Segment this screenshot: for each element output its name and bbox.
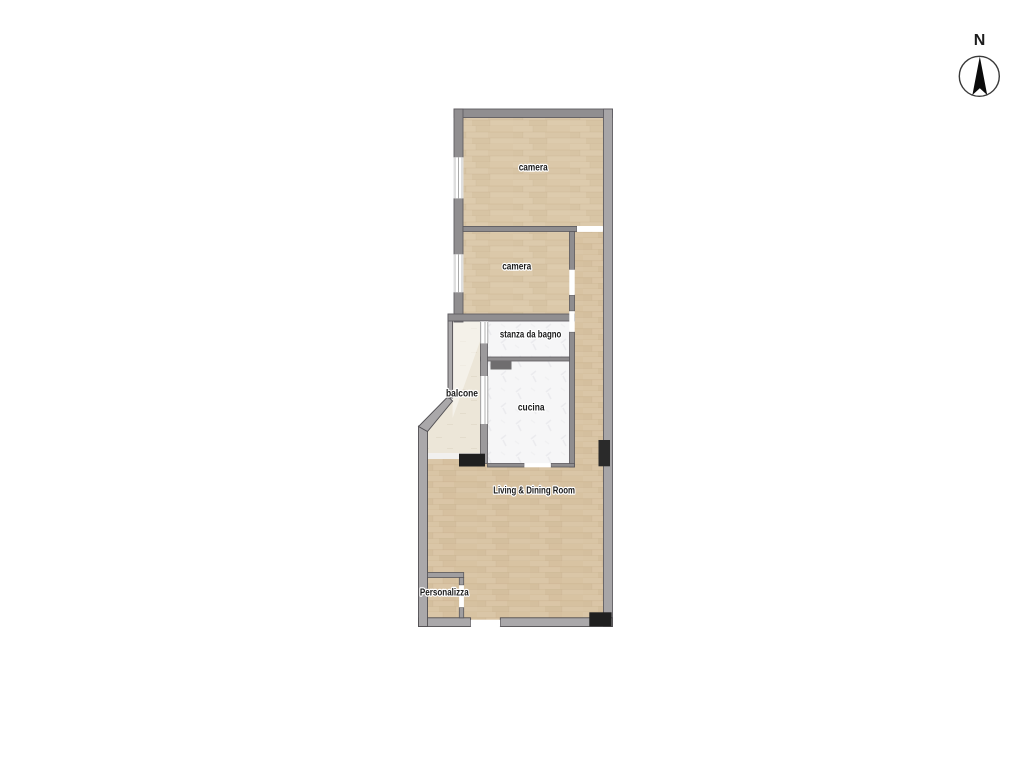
svg-text:Personalizza: Personalizza bbox=[420, 587, 469, 599]
svg-text:N: N bbox=[974, 32, 986, 49]
svg-text:camera: camera bbox=[502, 261, 531, 273]
svg-text:cucina: cucina bbox=[518, 401, 545, 413]
svg-text:stanza da bagno: stanza da bagno bbox=[500, 329, 562, 341]
svg-text:balcone: balcone bbox=[446, 388, 478, 400]
svg-text:Living & Dining Room: Living & Dining Room bbox=[493, 484, 575, 496]
svg-text:camera: camera bbox=[519, 161, 548, 173]
